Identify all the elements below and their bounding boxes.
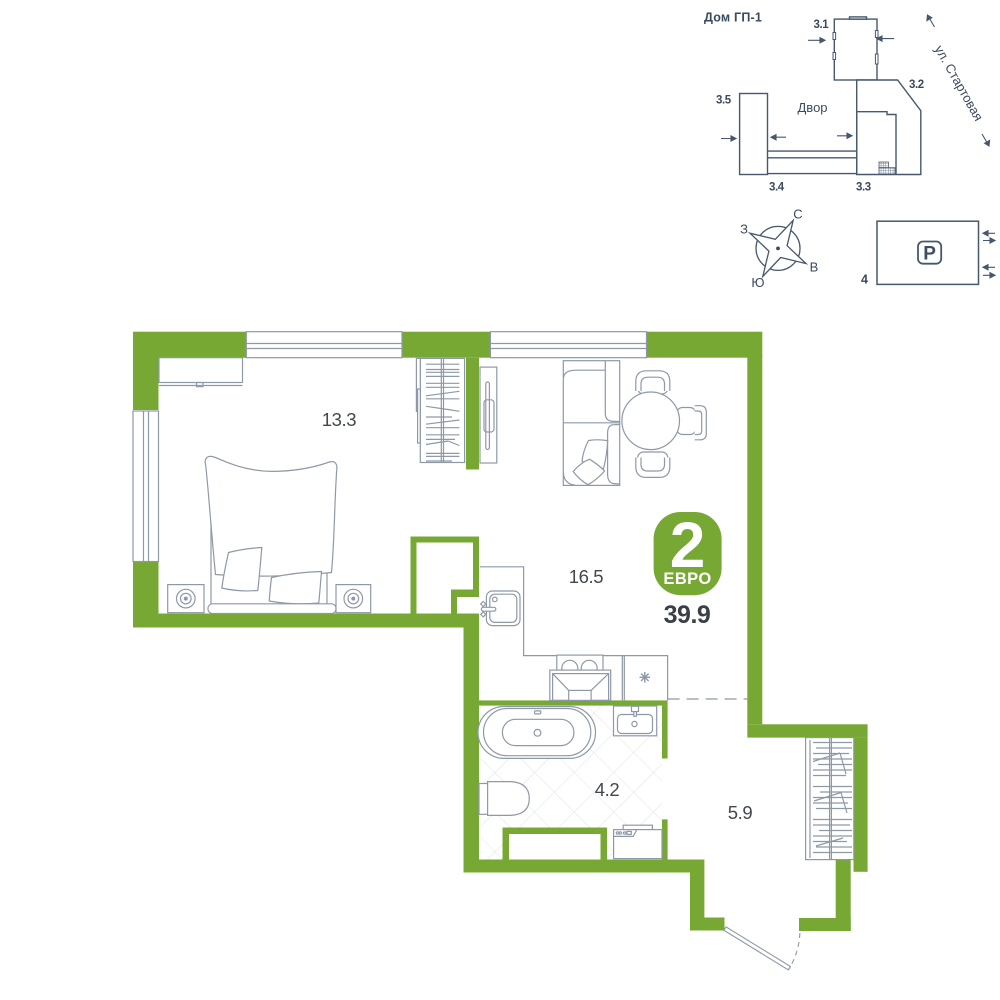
svg-text:ул. Стартовая: ул. Стартовая [932,43,987,124]
svg-text:С: С [793,207,802,222]
svg-text:39.9: 39.9 [664,601,711,629]
svg-text:В: В [810,260,819,275]
svg-text:5.9: 5.9 [728,802,753,823]
svg-text:3.1: 3.1 [814,19,830,31]
svg-text:ЕВРО: ЕВРО [663,570,711,588]
svg-text:3.5: 3.5 [716,95,732,107]
svg-text:Двор: Двор [798,100,828,115]
svg-text:13.3: 13.3 [322,409,357,430]
svg-text:16.5: 16.5 [569,566,604,587]
svg-text:P: P [923,244,936,265]
svg-text:Дом ГП-1: Дом ГП-1 [704,11,762,25]
svg-text:4: 4 [861,273,868,287]
svg-text:4.2: 4.2 [595,779,620,800]
svg-text:3.3: 3.3 [856,182,871,194]
svg-text:3.2: 3.2 [909,79,924,91]
svg-text:Ю: Ю [751,275,764,290]
svg-text:3.4: 3.4 [769,182,785,194]
svg-text:З: З [740,222,748,237]
